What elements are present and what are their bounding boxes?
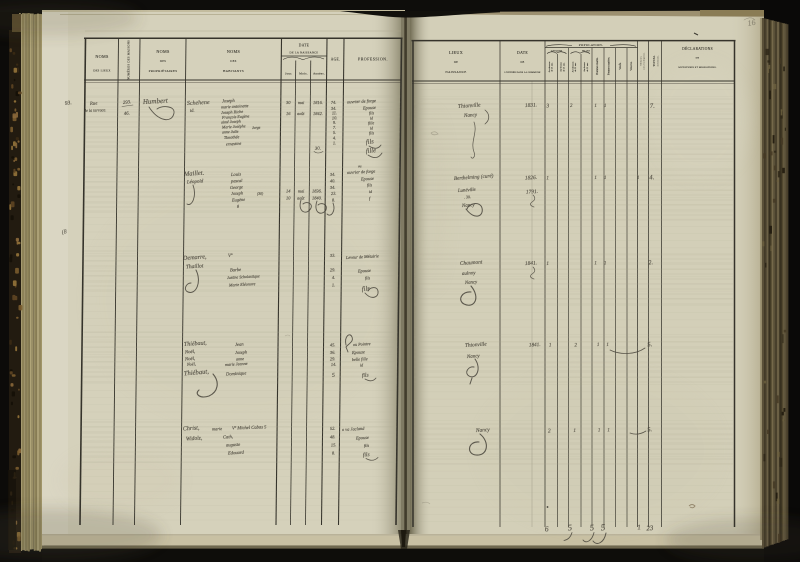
svg-text:DATE: DATE xyxy=(299,44,310,48)
svg-text:45.: 45. xyxy=(330,342,336,347)
svg-text:Veuves.: Veuves. xyxy=(629,61,633,71)
svg-text:belle fille: belle fille xyxy=(352,356,368,362)
svg-text:DÉCLARATIONS: DÉCLARATIONS xyxy=(682,46,713,51)
svg-text:Louis: Louis xyxy=(230,171,242,177)
svg-text:Joseph: Joseph xyxy=(235,349,248,355)
svg-text:4.: 4. xyxy=(332,275,336,280)
svg-text:. 30.: . 30. xyxy=(464,194,471,199)
svg-text:AGE.: AGE. xyxy=(331,58,340,62)
svg-text:30: 30 xyxy=(286,100,291,105)
svg-text:George: George xyxy=(230,184,243,190)
svg-text:Noël,: Noël, xyxy=(184,350,196,356)
svg-text:5: 5 xyxy=(567,522,572,532)
svg-text:93.: 93. xyxy=(64,100,72,107)
svg-text:1: 1 xyxy=(607,428,610,433)
svg-text:LIEUX: LIEUX xyxy=(449,50,463,55)
svg-text:16: 16 xyxy=(747,18,756,28)
svg-text:5.: 5. xyxy=(333,130,337,135)
svg-text:PROFESSION.: PROFESSION. xyxy=(358,57,388,62)
svg-text:1: 1 xyxy=(598,428,601,433)
svg-text:34.: 34. xyxy=(330,172,336,177)
svg-text:5: 5 xyxy=(589,522,594,532)
svg-text:DE: DE xyxy=(696,57,700,60)
svg-text:Mois.: Mois. xyxy=(299,72,308,76)
svg-text:NOMS: NOMS xyxy=(95,54,109,59)
svg-text:2.: 2. xyxy=(648,259,653,266)
svg-text:1: 1 xyxy=(594,176,597,181)
svg-text:3: 3 xyxy=(545,103,549,109)
svg-text:1: 1 xyxy=(606,343,609,348)
svg-text:NAISSANCE: NAISSANCE xyxy=(445,70,466,74)
svg-text:NOMS: NOMS xyxy=(227,49,241,54)
svg-text:Eugène: Eugène xyxy=(231,197,245,203)
svg-text:DATE: DATE xyxy=(517,51,528,55)
svg-text:Nancy: Nancy xyxy=(466,354,481,360)
svg-text:46.: 46. xyxy=(124,111,130,117)
svg-text:1: 1 xyxy=(637,523,641,531)
svg-text:GARÇONS: GARÇONS xyxy=(551,50,563,53)
svg-text:fils: fils xyxy=(366,138,375,146)
svg-text:1: 1 xyxy=(594,104,597,109)
svg-text:Schehene: Schehene xyxy=(187,100,210,107)
svg-text:29.: 29. xyxy=(330,356,336,361)
svg-text:Barbe: Barbe xyxy=(230,267,241,273)
svg-text:34.: 34. xyxy=(330,185,336,190)
svg-text:1836.: 1836. xyxy=(312,189,322,194)
svg-text:23: 23 xyxy=(646,524,654,533)
svg-text:Veufs.: Veufs. xyxy=(618,62,622,70)
svg-text:Vº: Vº xyxy=(228,253,233,259)
svg-text:Thaillot: Thaillot xyxy=(186,263,204,270)
svg-text:74.: 74. xyxy=(331,100,337,105)
svg-text:1816.: 1816. xyxy=(313,100,323,105)
svg-text:Jean: Jean xyxy=(235,342,245,347)
svg-text:(30): (30) xyxy=(257,192,264,196)
svg-text:Au-dessousde 21 ans.: Au-dessousde 21 ans. xyxy=(548,62,554,73)
svg-text:Widolz,: Widolz, xyxy=(186,435,203,442)
svg-text:Au-dessousde 21 ans.: Au-dessousde 21 ans. xyxy=(571,62,577,73)
svg-text:1831.: 1831. xyxy=(525,102,537,109)
svg-text:DE: DE xyxy=(520,61,524,64)
svg-text:NOMS: NOMS xyxy=(156,49,170,54)
svg-text:MUTATIONS ET MIGRATIONS.: MUTATIONS ET MIGRATIONS. xyxy=(678,66,716,69)
svg-text:4.: 4. xyxy=(649,174,655,181)
svg-text:mai: mai xyxy=(298,100,305,105)
svg-text:5.: 5. xyxy=(647,341,653,348)
svg-text:Epouse: Epouse xyxy=(357,268,371,274)
svg-text:1: 1 xyxy=(604,261,607,266)
svg-text:Nancy: Nancy xyxy=(463,112,478,119)
svg-text:pascal: pascal xyxy=(230,178,243,184)
svg-text:36.: 36. xyxy=(330,350,336,355)
svg-text:fils: fils xyxy=(362,372,369,379)
svg-text:marie: marie xyxy=(212,426,223,432)
svg-text:23.: 23. xyxy=(331,191,337,196)
svg-text:1.: 1. xyxy=(332,282,336,287)
svg-text:8.: 8. xyxy=(332,197,336,202)
svg-text:fils: fils xyxy=(363,451,370,458)
svg-text:1: 1 xyxy=(597,343,600,348)
svg-text:8.: 8. xyxy=(332,450,336,455)
svg-text:NUMÉROS DES MAISONS: NUMÉROS DES MAISONS xyxy=(126,40,131,80)
svg-text:mai: mai xyxy=(298,189,305,194)
svg-text:Christ,: Christ, xyxy=(183,425,200,432)
svg-text:DE: DE xyxy=(454,61,458,64)
svg-text:Hommes mariés.: Hommes mariés. xyxy=(596,57,599,75)
svg-text:ou Pointre: ou Pointre xyxy=(353,341,371,347)
svg-text:fils: fils xyxy=(365,275,371,280)
svg-text:Humbert: Humbert xyxy=(142,97,169,106)
svg-text:aulnoy: aulnoy xyxy=(462,271,477,277)
svg-text:48.: 48. xyxy=(330,434,336,439)
svg-text:Jour.: Jour. xyxy=(285,72,292,76)
svg-text:Au-dessusde 21 ans.: Au-dessusde 21 ans. xyxy=(560,62,566,72)
svg-text:vu: vu xyxy=(358,164,362,168)
svg-text:fils: fils xyxy=(364,443,370,448)
svg-text:DES: DES xyxy=(230,60,236,63)
svg-text:fils: fils xyxy=(369,130,375,135)
svg-text:Epouse: Epouse xyxy=(360,176,374,182)
svg-text:1826.: 1826. xyxy=(525,175,537,182)
svg-text:DES: DES xyxy=(160,60,166,63)
svg-text:Timothée: Timothée xyxy=(224,134,240,140)
svg-text:1: 1 xyxy=(604,176,607,181)
svg-text:POPULATION.: POPULATION. xyxy=(579,43,603,47)
svg-text:ernestine: ernestine xyxy=(226,141,242,147)
svg-text:de la terrace.: de la terrace. xyxy=(84,107,107,113)
svg-text:14.: 14. xyxy=(331,362,337,367)
svg-text:1841.: 1841. xyxy=(525,260,537,267)
svg-text:fils: fils xyxy=(367,182,373,187)
svg-text:Années.: Années. xyxy=(313,72,325,76)
svg-text:30.: 30. xyxy=(315,146,321,152)
svg-text:Rue: Rue xyxy=(89,101,99,107)
svg-text:15.: 15. xyxy=(331,442,337,447)
svg-text:1791.: 1791. xyxy=(526,189,538,196)
svg-text:1842.: 1842. xyxy=(313,111,323,116)
svg-text:1840.: 1840. xyxy=(312,196,322,201)
svg-text:Au-dessusde 21 ans.: Au-dessusde 21 ans. xyxy=(583,62,589,72)
svg-text:auguste: auguste xyxy=(226,442,241,448)
svg-text:5: 5 xyxy=(332,373,335,379)
svg-text:Epouse: Epouse xyxy=(351,349,365,355)
svg-text:7.: 7. xyxy=(650,103,656,110)
svg-text:Joseph: Joseph xyxy=(222,98,236,104)
svg-text:août: août xyxy=(297,111,305,116)
svg-text:52.: 52. xyxy=(330,426,336,431)
svg-text:33.: 33. xyxy=(330,253,336,258)
svg-text:29.: 29. xyxy=(330,267,336,272)
svg-text:1: 1 xyxy=(604,104,607,109)
svg-text:des habitants.: des habitants. xyxy=(658,55,660,67)
svg-text:1841.: 1841. xyxy=(529,341,541,349)
svg-text:Jorge: Jorge xyxy=(252,126,261,130)
svg-text:Nancy: Nancy xyxy=(475,427,491,434)
svg-text:1: 1 xyxy=(637,176,640,181)
svg-text:DES LIEUX: DES LIEUX xyxy=(93,69,111,73)
svg-text:TOTAL: TOTAL xyxy=(652,54,656,66)
svg-text:Nancy: Nancy xyxy=(464,280,478,286)
svg-text:DE LA NAISSANCE: DE LA NAISSANCE xyxy=(290,52,319,55)
svg-text:id.: id. xyxy=(190,108,195,113)
svg-text:HABITANTS: HABITANTS xyxy=(223,69,244,73)
svg-text:Edouard: Edouard xyxy=(227,450,245,456)
svg-text:Femmes mariées.: Femmes mariées. xyxy=(608,57,611,76)
svg-text:40.: 40. xyxy=(330,178,336,183)
svg-text:Joseph: Joseph xyxy=(231,190,244,196)
svg-text:fille: fille xyxy=(366,147,377,155)
svg-text:L'ENTRÉE DANS LA COMMUNE: L'ENTRÉE DANS LA COMMUNE xyxy=(505,71,541,74)
svg-text:PROPRIÉTAIRES: PROPRIÉTAIRES xyxy=(149,68,178,73)
svg-text:1: 1 xyxy=(594,261,597,266)
svg-text:16: 16 xyxy=(286,111,291,116)
svg-text:Epouse: Epouse xyxy=(355,435,369,441)
svg-text:1.: 1. xyxy=(333,140,337,145)
